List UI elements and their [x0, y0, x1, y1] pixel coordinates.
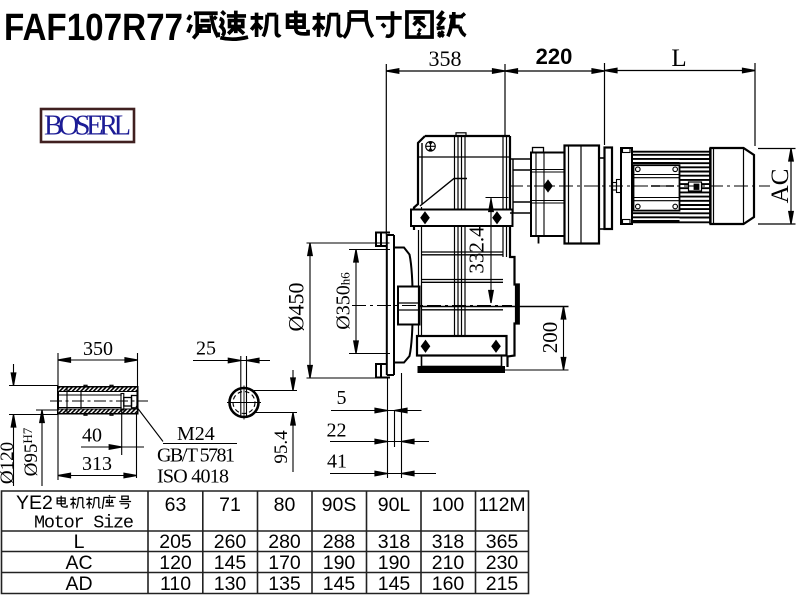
svg-text:365: 365: [486, 531, 519, 553]
svg-text:Ø450: Ø450: [284, 283, 309, 332]
svg-text:YE2: YE2: [16, 492, 53, 514]
svg-text:AC: AC: [767, 169, 794, 204]
svg-text:350: 350: [83, 338, 113, 360]
svg-text:80: 80: [274, 494, 296, 516]
svg-text:5: 5: [337, 387, 347, 409]
svg-text:FAF107R77: FAF107R77: [4, 7, 183, 49]
svg-text:25: 25: [196, 338, 216, 360]
svg-text:190: 190: [323, 552, 356, 574]
svg-text:AD: AD: [65, 573, 92, 595]
svg-text:190: 190: [378, 552, 411, 574]
svg-text:L: L: [74, 531, 85, 553]
svg-text:110: 110: [160, 573, 191, 595]
svg-text:22: 22: [327, 420, 347, 442]
svg-text:160: 160: [432, 573, 465, 595]
svg-text:318: 318: [378, 531, 411, 553]
svg-text:AC: AC: [65, 552, 92, 574]
svg-text:288: 288: [323, 531, 356, 553]
svg-text:71: 71: [219, 494, 241, 516]
svg-text:135: 135: [268, 573, 301, 595]
svg-text:145: 145: [214, 552, 247, 574]
svg-text:200: 200: [538, 322, 562, 354]
svg-text:332.4: 332.4: [465, 226, 489, 274]
svg-text:220: 220: [536, 44, 573, 69]
svg-text:260: 260: [214, 531, 247, 553]
svg-text:L: L: [671, 45, 686, 72]
svg-text:313: 313: [82, 453, 112, 475]
svg-text:41: 41: [327, 451, 347, 473]
svg-text:ISO 4018: ISO 4018: [157, 466, 229, 488]
svg-text:M24: M24: [177, 423, 215, 445]
svg-text:GB/T 5781: GB/T 5781: [157, 445, 235, 467]
svg-text:130: 130: [214, 573, 247, 595]
svg-text:Ø120: Ø120: [0, 442, 18, 484]
svg-text:358: 358: [429, 46, 462, 71]
svg-text:215: 215: [486, 573, 519, 595]
svg-text:210: 210: [432, 552, 465, 574]
svg-text:120: 120: [159, 552, 192, 574]
svg-text:40: 40: [82, 425, 102, 447]
svg-text:90L: 90L: [378, 494, 411, 516]
svg-text:170: 170: [268, 552, 301, 574]
svg-text:318: 318: [432, 531, 465, 553]
svg-text:63: 63: [165, 494, 187, 516]
svg-text:280: 280: [268, 531, 301, 553]
svg-text:205: 205: [159, 531, 192, 553]
svg-text:100: 100: [432, 494, 465, 516]
svg-text:145: 145: [323, 573, 356, 595]
svg-text:90S: 90S: [322, 494, 357, 516]
svg-text:95.4: 95.4: [271, 430, 292, 464]
svg-text:112M: 112M: [478, 494, 525, 516]
svg-text:230: 230: [486, 552, 519, 574]
svg-text:145: 145: [378, 573, 411, 595]
svg-text:BOSERL: BOSERL: [44, 111, 131, 142]
